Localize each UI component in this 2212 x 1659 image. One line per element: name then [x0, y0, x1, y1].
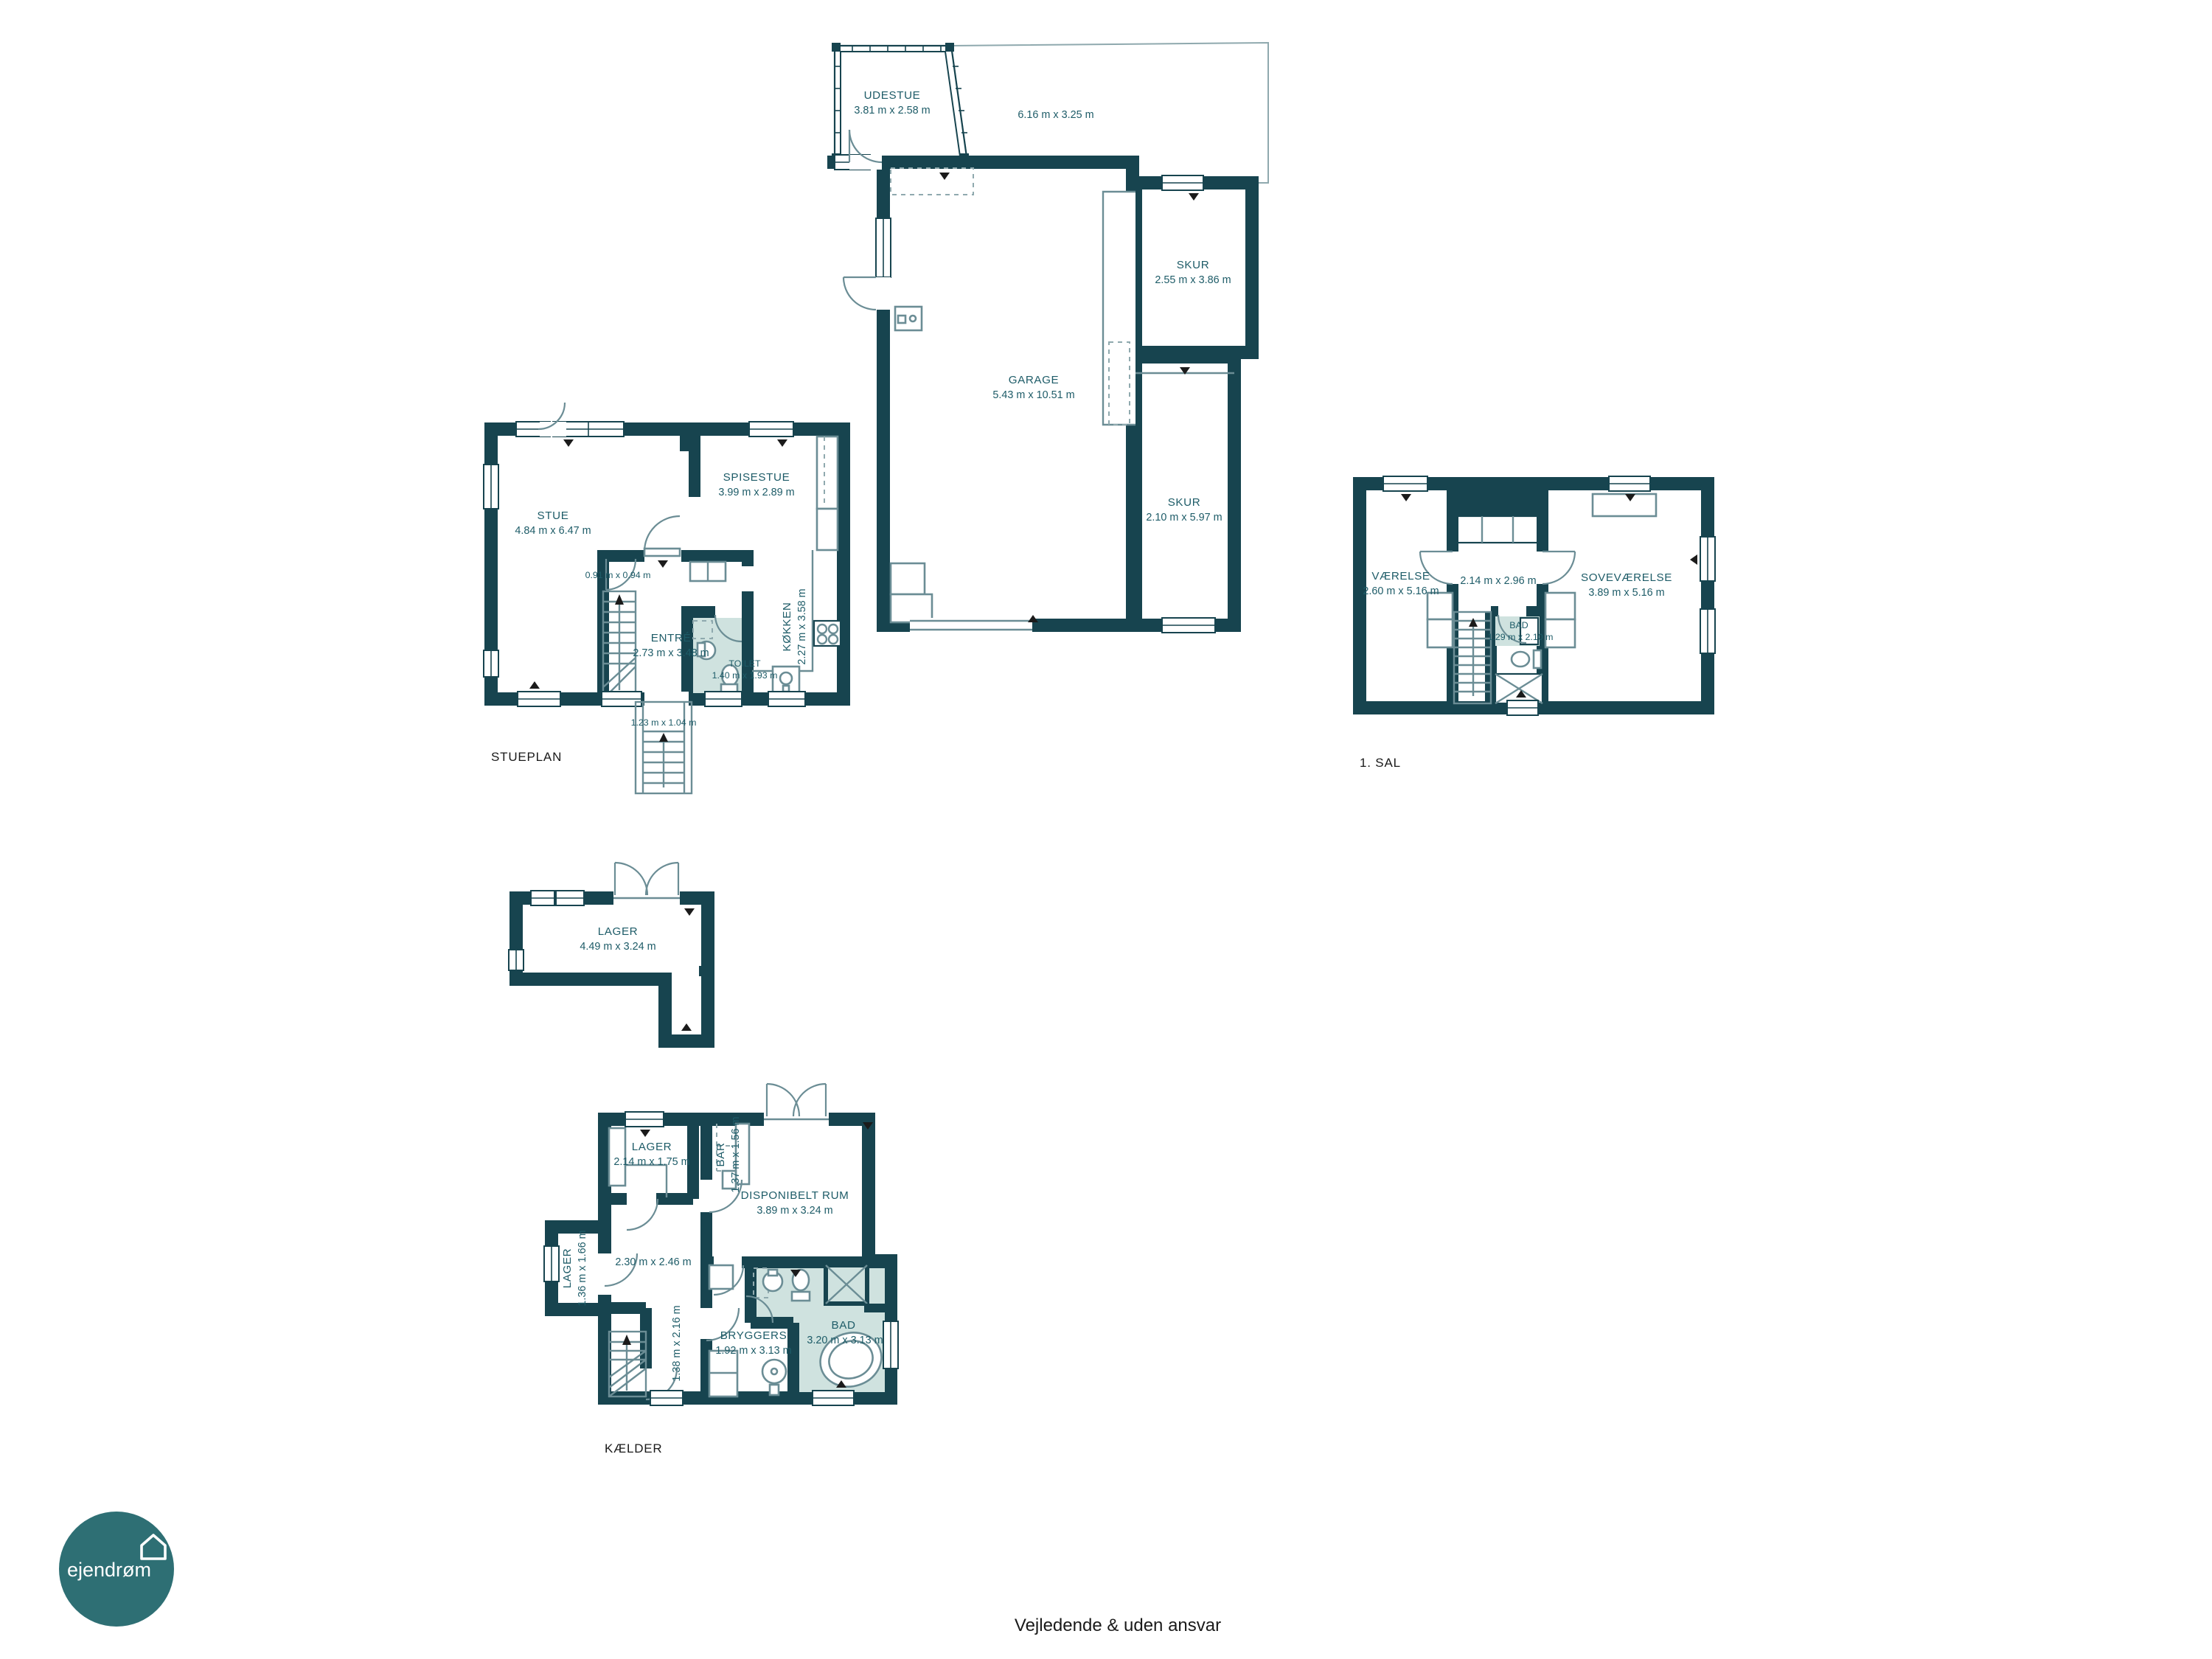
room-label: BRYGGERS: [720, 1329, 787, 1342]
room-label: DISPONIBELT RUM: [741, 1189, 849, 1202]
room-skur-bottom-walls: [1135, 357, 1234, 625]
room-dims: 1.29 m x 2.10 m: [1488, 632, 1554, 642]
external-stair: [636, 702, 692, 793]
room-dims: 2.60 m x 5.16 m: [1363, 585, 1439, 597]
room-label: UDESTUE: [864, 89, 921, 102]
room-dims: 4.49 m x 3.24 m: [580, 941, 655, 953]
room-label: BAD: [1509, 620, 1528, 630]
floor-label: 1. SAL: [1360, 756, 1401, 770]
room-dims: 1.92 m x 3.13 m: [715, 1345, 791, 1357]
room-label: BAR: [714, 1142, 727, 1166]
disclaimer-text: Vejledende & uden ansvar: [1015, 1615, 1221, 1635]
room-dims: 1.37 m x 1.56 m: [730, 1116, 742, 1192]
room-dims: 1.23 m x 1.04 m: [631, 717, 697, 728]
room-dims: 0.91 m x 0.94 m: [585, 570, 651, 580]
room-label: ENTRÉ: [651, 632, 691, 644]
room-label: KØKKEN: [781, 602, 793, 652]
lager-outer-walls: [516, 898, 708, 1041]
kaelder-plan: LAGER 2.14 m x 1.75 m BAR 1.37 m x 1.56 …: [544, 1084, 898, 1455]
room-dims: 2.14 m x 1.75 m: [613, 1156, 689, 1168]
room-dims: 3.89 m x 5.16 m: [1588, 587, 1664, 599]
room-label: SKUR: [1177, 259, 1210, 271]
room-dims: 5.43 m x 10.51 m: [992, 389, 1074, 401]
room-dims: 1.36 m x 1.66 m: [577, 1230, 588, 1306]
room-label: SPISESTUE: [723, 471, 790, 484]
room-dims: 2.55 m x 3.86 m: [1155, 274, 1231, 286]
room-label: LAGER: [598, 925, 639, 938]
room-label: GARAGE: [1009, 374, 1060, 386]
room-dims: 6.16 m x 3.25 m: [1018, 109, 1093, 121]
room-label: TOILET: [728, 658, 761, 669]
room-dims: 2.10 m x 5.97 m: [1146, 512, 1222, 524]
room-dims: 3.89 m x 3.24 m: [757, 1205, 832, 1217]
room-dims: 4.84 m x 6.47 m: [515, 525, 591, 537]
room-label: SKUR: [1168, 496, 1201, 509]
logo: ejendrøm: [59, 1512, 174, 1627]
floor-label: KÆLDER: [605, 1441, 663, 1455]
first-floor-plan: VÆRELSE 2.60 m x 5.16 m 2.14 m x 2.96 m …: [1360, 476, 1715, 770]
room-dims: 1.40 m x 1.93 m: [712, 670, 778, 681]
room-dims: 2.73 m x 3.48 m: [633, 647, 709, 659]
room-dims: 2.14 m x 2.96 m: [1460, 575, 1536, 587]
room-dims: 2.27 m x 3.58 m: [796, 588, 808, 664]
logo-text: ejendrøm: [67, 1559, 151, 1581]
room-dims: 3.99 m x 2.89 m: [718, 487, 794, 498]
room-label: LAGER: [632, 1141, 672, 1153]
stueplan-plan: STUE 4.84 m x 6.47 m SPISESTUE 3.99 m x …: [484, 403, 844, 793]
room-dims: 3.81 m x 2.58 m: [854, 105, 930, 116]
floor-label: STUEPLAN: [491, 750, 562, 764]
room-label: STUE: [538, 509, 569, 522]
roof-band: [1447, 478, 1548, 516]
lager-plan: LAGER 4.49 m x 3.24 m: [509, 863, 711, 1041]
stairs: [609, 1332, 646, 1397]
room-dims: 1.38 m x 2.16 m: [671, 1305, 683, 1381]
floorplan-canvas: UDESTUE 3.81 m x 2.58 m 6.16 m x 3.25 m …: [0, 0, 2212, 1659]
room-label: SOVEVÆRELSE: [1581, 571, 1672, 584]
room-label: LAGER: [561, 1248, 574, 1289]
room-label: VÆRELSE: [1371, 570, 1430, 582]
room-dims: 3.20 m x 3.13 m: [807, 1335, 883, 1346]
room-label: BAD: [831, 1319, 855, 1332]
garage-plan: UDESTUE 3.81 m x 2.58 m 6.16 m x 3.25 m …: [827, 43, 1268, 633]
room-dims: 2.30 m x 2.46 m: [615, 1256, 691, 1268]
